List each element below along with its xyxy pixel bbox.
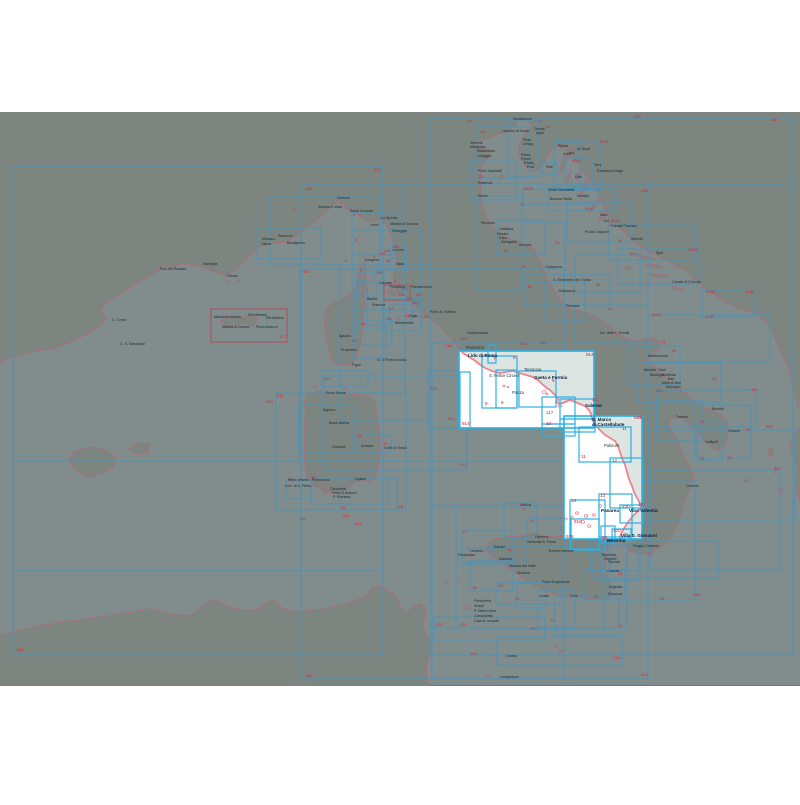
svg-text:Bozava Stella: Bozava Stella <box>550 197 572 201</box>
svg-text:21: 21 <box>520 202 525 207</box>
svg-text:Rab: Rab <box>575 175 582 179</box>
svg-text:33: 33 <box>521 264 526 269</box>
svg-text:Lignano di Grado: Lignano di Grado <box>502 129 530 133</box>
svg-text:Giardini: Giardini <box>604 557 617 561</box>
svg-text:Porto Empedocle: Porto Empedocle <box>542 580 570 584</box>
svg-text:912: 912 <box>324 376 331 381</box>
svg-text:4040: 4040 <box>706 289 716 294</box>
svg-text:Messina: Messina <box>607 538 626 543</box>
svg-text:916: 916 <box>430 386 437 391</box>
svg-text:118: 118 <box>376 270 383 275</box>
svg-text:Gallipoli: Gallipoli <box>705 440 718 444</box>
svg-text:Sciacca: Sciacca <box>517 571 530 575</box>
svg-text:Pula: Pula <box>527 165 534 169</box>
svg-text:Cagliari: Cagliari <box>354 477 366 481</box>
svg-text:36: 36 <box>618 238 623 243</box>
svg-text:6008: 6008 <box>689 247 699 252</box>
svg-text:Zut: Zut <box>604 219 609 223</box>
svg-text:11: 11 <box>581 454 586 459</box>
svg-text:Figari: Figari <box>352 363 361 367</box>
svg-text:32: 32 <box>596 282 601 287</box>
svg-text:Sestri Levante: Sestri Levante <box>350 209 373 213</box>
svg-text:Vantioitia S. Flens: Vantioitia S. Flens <box>527 540 556 544</box>
svg-text:Inc. delle I. Tremiti: Inc. delle I. Tremiti <box>600 331 629 335</box>
svg-text:Linosa: Linosa <box>506 654 517 658</box>
svg-text:9: 9 <box>501 400 504 405</box>
svg-text:6024: 6024 <box>652 312 662 317</box>
svg-text:Porto Garibaldi: Porto Garibaldi <box>478 169 502 173</box>
svg-text:Porto S. Stefano: Porto S. Stefano <box>430 310 456 314</box>
svg-text:Alghero: Alghero <box>323 408 335 412</box>
svg-text:Ilo Kural: Ilo Kural <box>577 147 590 151</box>
svg-text:Senigallia: Senigallia <box>501 240 517 244</box>
svg-text:Molat Vecchietta: Molat Vecchietta <box>548 188 574 192</box>
svg-text:29: 29 <box>746 427 751 432</box>
svg-text:918: 918 <box>693 592 700 597</box>
svg-text:Favignana: Favignana <box>458 553 475 557</box>
svg-text:Bordighera: Bordighera <box>287 241 305 245</box>
svg-text:434: 434 <box>306 186 313 191</box>
svg-text:Zara: Zara <box>600 213 607 217</box>
svg-text:910: 910 <box>520 341 527 346</box>
svg-text:Villa S. Giovanni: Villa S. Giovanni <box>621 533 657 538</box>
svg-text:19: 19 <box>515 596 520 601</box>
svg-text:Savona e Vado: Savona e Vado <box>318 205 342 209</box>
svg-text:10: 10 <box>550 618 555 623</box>
svg-text:119: 119 <box>398 292 405 297</box>
svg-text:Campobello: Campobello <box>474 614 493 618</box>
svg-text:40: 40 <box>387 316 392 321</box>
svg-text:Oristano: Oristano <box>332 445 346 449</box>
svg-text:Arbatax: Arbatax <box>361 444 374 448</box>
svg-text:912: 912 <box>530 626 537 631</box>
svg-text:Trapani: Trapani <box>493 545 505 549</box>
svg-text:Novalja: Novalja <box>577 194 589 198</box>
svg-text:46: 46 <box>361 321 366 326</box>
svg-text:Civitanova: Civitanova <box>545 265 562 269</box>
svg-text:21: 21 <box>618 623 623 628</box>
svg-text:6023: 6023 <box>524 186 534 191</box>
svg-text:Marina di Campo: Marina di Campo <box>222 325 249 329</box>
svg-text:116: 116 <box>379 251 386 256</box>
svg-text:Ancona: Ancona <box>519 243 531 247</box>
svg-text:Pianosa: Pianosa <box>372 303 385 307</box>
svg-text:24: 24 <box>744 478 749 483</box>
svg-text:P. Dietro Isola: P. Dietro Isola <box>474 609 496 613</box>
svg-text:920: 920 <box>766 424 773 429</box>
svg-text:113: 113 <box>415 292 422 297</box>
svg-text:10: 10 <box>537 118 542 123</box>
svg-text:10: 10 <box>592 397 598 402</box>
svg-text:Otranto: Otranto <box>728 429 740 433</box>
svg-text:3030: 3030 <box>705 314 715 319</box>
svg-text:Giulianova: Giulianova <box>558 289 575 293</box>
svg-text:230: 230 <box>460 622 467 627</box>
svg-text:922: 922 <box>460 336 467 341</box>
svg-text:Termini Imerese: Termini Imerese <box>548 549 574 553</box>
svg-text:25: 25 <box>700 419 705 424</box>
svg-text:Augusta: Augusta <box>609 585 622 589</box>
svg-text:122: 122 <box>412 300 419 305</box>
svg-text:8: 8 <box>513 355 516 360</box>
svg-text:915: 915 <box>566 534 574 539</box>
svg-text:Lido di Roma: Lido di Roma <box>468 353 498 358</box>
svg-text:Rab: Rab <box>546 165 553 169</box>
svg-text:915: 915 <box>634 415 642 420</box>
svg-text:45: 45 <box>341 505 346 510</box>
svg-text:910: 910 <box>303 269 310 274</box>
svg-text:17: 17 <box>499 174 504 179</box>
svg-text:14: 14 <box>571 498 577 503</box>
svg-text:Tolone: Tolone <box>227 274 238 278</box>
svg-text:Ajaccio: Ajaccio <box>339 334 351 338</box>
svg-text:31: 31 <box>555 240 560 245</box>
svg-text:6012: 6012 <box>572 158 582 163</box>
svg-text:Rio Marina: Rio Marina <box>266 316 283 320</box>
svg-text:912: 912 <box>460 462 467 467</box>
svg-text:117: 117 <box>279 334 286 339</box>
svg-text:Siracusa: Siracusa <box>608 592 622 596</box>
svg-text:P. Romano: P. Romano <box>333 495 351 499</box>
svg-text:10: 10 <box>638 502 644 507</box>
svg-text:Brindisi: Brindisi <box>712 407 724 411</box>
svg-text:La Spezia: La Spezia <box>381 216 397 220</box>
svg-text:26: 26 <box>727 455 732 460</box>
svg-text:Gon. di S. Pietro: Gon. di S. Pietro <box>285 484 311 488</box>
svg-text:Bastia: Bastia <box>367 297 377 301</box>
svg-text:Scauri: Scauri <box>474 604 484 608</box>
svg-text:18: 18 <box>467 118 472 123</box>
svg-text:Catania: Catania <box>607 569 619 573</box>
svg-text:42: 42 <box>389 306 394 311</box>
svg-text:Vada: Vada <box>396 262 404 266</box>
svg-text:Gaeta e Formia: Gaeta e Formia <box>534 375 568 380</box>
svg-text:424: 424 <box>751 387 758 392</box>
svg-text:912: 912 <box>448 416 455 421</box>
svg-text:Licata: Licata <box>539 594 549 598</box>
svg-text:Ustica: Ustica <box>521 503 531 507</box>
svg-text:917: 917 <box>498 583 505 588</box>
svg-text:Livorno: Livorno <box>392 248 404 252</box>
svg-text:Propriano: Propriano <box>341 348 357 352</box>
svg-text:Pescara: Pescara <box>566 304 579 308</box>
svg-text:30: 30 <box>672 348 677 353</box>
svg-text:4145: 4145 <box>745 289 755 294</box>
svg-text:Monaco: Monaco <box>262 237 275 241</box>
svg-text:Salerno: Salerno <box>585 403 602 408</box>
svg-text:43: 43 <box>352 338 357 343</box>
svg-text:916: 916 <box>445 343 452 348</box>
svg-text:di Castellabate: di Castellabate <box>592 422 625 427</box>
svg-text:34: 34 <box>608 306 613 311</box>
svg-text:914: 914 <box>586 352 594 357</box>
svg-text:Ponza: Ponza <box>512 390 525 395</box>
svg-text:Monopoli: Monopoli <box>666 385 681 389</box>
svg-text:Marsala: Marsala <box>499 557 512 561</box>
svg-text:Piombino: Piombino <box>390 285 405 289</box>
svg-text:920: 920 <box>774 466 781 471</box>
svg-text:Palermo: Palermo <box>535 535 548 539</box>
svg-text:Prolaz Zaljuzni: Prolaz Zaljuzni <box>585 230 609 234</box>
svg-text:Chioggia: Chioggia <box>477 154 491 158</box>
svg-text:35: 35 <box>630 251 635 256</box>
svg-text:Marina di Carrara: Marina di Carrara <box>390 222 418 226</box>
svg-text:Fiumicino: Fiumicino <box>466 345 485 350</box>
svg-text:Krk: Krk <box>569 151 575 155</box>
svg-text:Reggio Calabria: Reggio Calabria <box>633 544 659 548</box>
svg-text:118: 118 <box>397 504 404 509</box>
svg-text:18: 18 <box>472 585 477 590</box>
svg-text:43: 43 <box>357 433 362 438</box>
svg-text:28: 28 <box>712 376 717 381</box>
svg-text:Cattolica: Cattolica <box>499 227 513 231</box>
svg-text:Porto Torres: Porto Torres <box>326 391 346 395</box>
svg-text:C. Creus: C. Creus <box>112 318 126 322</box>
svg-text:Rijeka: Rijeka <box>558 144 568 148</box>
svg-text:Portovecchio: Portovecchio <box>411 285 432 289</box>
svg-text:10: 10 <box>546 421 552 426</box>
svg-text:8: 8 <box>485 401 488 406</box>
svg-text:Montecristo: Montecristo <box>395 321 414 325</box>
svg-text:913: 913 <box>266 399 273 404</box>
svg-text:434: 434 <box>641 188 648 193</box>
svg-text:31: 31 <box>661 339 666 344</box>
svg-text:12: 12 <box>612 458 618 463</box>
svg-text:Lerici: Lerici <box>370 223 379 227</box>
svg-text:Civitavecchia: Civitavecchia <box>467 331 488 335</box>
svg-text:Terracina: Terracina <box>524 367 542 372</box>
svg-text:6024: 6024 <box>611 218 621 223</box>
svg-text:Aquil.: Aquil. <box>536 131 545 135</box>
svg-text:23: 23 <box>648 551 653 556</box>
svg-text:914: 914 <box>462 421 470 426</box>
svg-text:918: 918 <box>574 519 582 524</box>
svg-text:Viareggio: Viareggio <box>392 229 407 233</box>
svg-text:913: 913 <box>613 655 620 660</box>
svg-text:6021: 6021 <box>600 139 610 144</box>
svg-text:Ravenna: Ravenna <box>478 181 492 185</box>
svg-text:Cala di Levante: Cala di Levante <box>474 619 499 623</box>
svg-text:Bosa Marina: Bosa Marina <box>329 421 349 425</box>
svg-text:Canale Pazman: Canale Pazman <box>611 224 637 228</box>
svg-text:Sibenik: Sibenik <box>631 237 643 241</box>
svg-text:Marciana Marina: Marciana Marina <box>214 315 241 319</box>
svg-text:430: 430 <box>771 117 778 122</box>
svg-text:Lampedusa: Lampedusa <box>500 675 519 679</box>
svg-text:911: 911 <box>277 393 284 398</box>
svg-text:33: 33 <box>504 248 509 253</box>
svg-text:911: 911 <box>343 513 350 518</box>
svg-text:Monfalcone: Monfalcone <box>513 117 532 121</box>
svg-text:424: 424 <box>656 388 663 393</box>
svg-text:Panarea: Panarea <box>601 508 619 513</box>
svg-text:26: 26 <box>700 456 705 461</box>
svg-text:16: 16 <box>480 129 485 134</box>
svg-text:Canale di Curzola: Canale di Curzola <box>672 280 701 284</box>
svg-text:Porto Vesme - Portoscuso: Porto Vesme - Portoscuso <box>288 478 330 482</box>
svg-text:24: 24 <box>660 596 665 601</box>
svg-text:13: 13 <box>600 493 606 498</box>
svg-text:Barletta: Barletta <box>644 368 656 372</box>
svg-text:C. S. Sebastian: C. S. Sebastian <box>120 342 145 346</box>
svg-text:20: 20 <box>594 594 599 599</box>
svg-text:Rimini: Rimini <box>478 194 488 198</box>
svg-text:Genova: Genova <box>337 196 350 200</box>
svg-text:1-18: 1-18 <box>420 314 429 319</box>
svg-text:Senj: Senj <box>594 163 601 167</box>
svg-text:Split: Split <box>656 251 663 255</box>
svg-text:432: 432 <box>17 647 24 652</box>
svg-text:435: 435 <box>436 622 443 627</box>
svg-text:Malamocco: Malamocco <box>477 149 495 153</box>
svg-text:19: 19 <box>545 124 550 129</box>
svg-text:Vibo Valentia: Vibo Valentia <box>629 508 658 513</box>
svg-text:Pantelleria: Pantelleria <box>474 599 491 603</box>
svg-text:434: 434 <box>470 651 477 656</box>
svg-text:433: 433 <box>634 114 641 119</box>
svg-text:911: 911 <box>300 516 307 521</box>
svg-text:Taranto: Taranto <box>676 415 688 419</box>
svg-text:Levanzo: Levanzo <box>470 549 484 553</box>
svg-text:S. Benedetto del Tronto: S. Benedetto del Tronto <box>553 278 591 282</box>
svg-text:Gorgona: Gorgona <box>365 258 379 262</box>
svg-text:913: 913 <box>355 521 362 526</box>
svg-text:Riccione: Riccione <box>481 221 495 225</box>
svg-text:117: 117 <box>546 410 554 415</box>
svg-text:Crotone: Crotone <box>686 484 699 488</box>
svg-text:Palinuro: Palinuro <box>604 443 620 448</box>
svg-text:Marsiglia: Marsiglia <box>203 262 217 266</box>
svg-text:120: 120 <box>613 528 621 533</box>
svg-text:20: 20 <box>479 174 484 179</box>
svg-text:17: 17 <box>462 529 467 534</box>
svg-text:6022: 6022 <box>585 206 595 211</box>
svg-text:432: 432 <box>374 167 381 172</box>
svg-text:15: 15 <box>530 518 535 523</box>
svg-text:Giglio: Giglio <box>409 314 418 318</box>
svg-text:S. Felice Circeo: S. Felice Circeo <box>489 373 519 378</box>
svg-text:Umag: Umag <box>523 142 533 146</box>
svg-text:34: 34 <box>527 284 532 289</box>
svg-text:434: 434 <box>306 673 313 678</box>
svg-text:Ravenica Draga: Ravenica Draga <box>597 169 623 173</box>
svg-text:434: 434 <box>641 672 648 677</box>
svg-text:Nizza: Nizza <box>262 242 271 246</box>
svg-text:Porto Azzurro: Porto Azzurro <box>256 325 278 329</box>
svg-text:50: 50 <box>386 258 391 263</box>
svg-text:Trani: Trani <box>658 368 666 372</box>
svg-text:Mazara del Vallo: Mazara del Vallo <box>509 564 536 568</box>
svg-text:G. di Portovecchio: G. di Portovecchio <box>377 358 406 362</box>
svg-text:Foci del Rodano: Foci del Rodano <box>160 267 186 271</box>
svg-text:16: 16 <box>507 547 512 552</box>
svg-text:Portoferraio: Portoferraio <box>248 313 267 317</box>
svg-text:Golfo di Tortoli: Golfo di Tortoli <box>384 446 407 450</box>
svg-text:Manfredonia: Manfredonia <box>648 354 668 358</box>
svg-text:Gela: Gela <box>570 594 578 598</box>
svg-text:922: 922 <box>540 340 547 345</box>
svg-text:Sanremo: Sanremo <box>278 234 293 238</box>
